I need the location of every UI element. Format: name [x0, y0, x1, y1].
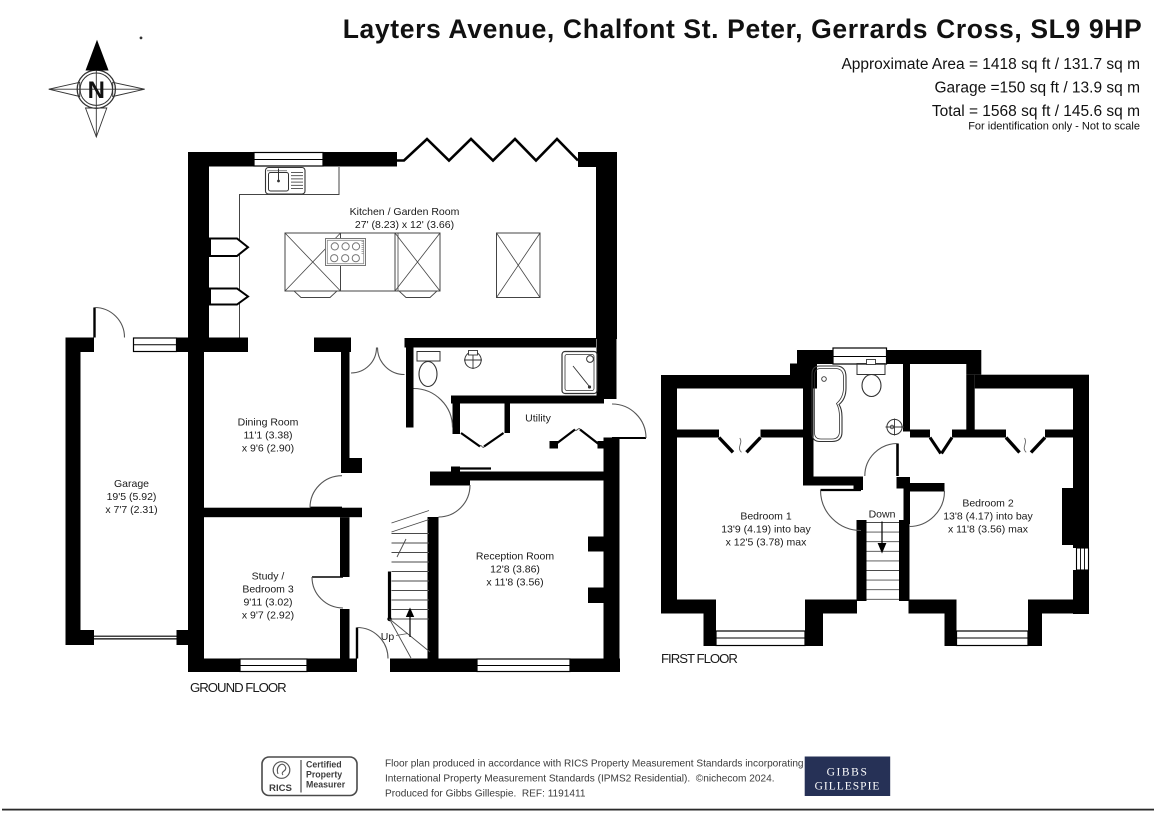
svg-text:Certified: Certified [306, 760, 342, 770]
svg-text:Measurer: Measurer [306, 780, 346, 790]
svg-text:Total = 1568 sq ft / 145.6 sq: Total = 1568 sq ft / 145.6 sq m [932, 103, 1140, 120]
svg-text:13'8 (4.17) into bay: 13'8 (4.17) into bay [943, 511, 1033, 523]
svg-text:RICS: RICS [269, 783, 293, 794]
svg-text:x 12'5 (3.78) max: x 12'5 (3.78) max [726, 537, 808, 549]
svg-text:x 7'7 (2.31): x 7'7 (2.31) [105, 504, 157, 516]
svg-text:GROUND FLOOR: GROUND FLOOR [190, 680, 286, 695]
svg-text:Produced for Gibbs Gillespie.: Produced for Gibbs Gillespie. REF: 11914… [385, 789, 586, 800]
svg-text:Reception Room: Reception Room [476, 551, 554, 563]
svg-text:GIBBS: GIBBS [827, 767, 869, 779]
svg-text:x 11'8 (3.56): x 11'8 (3.56) [486, 577, 543, 589]
svg-text:Garage: Garage [114, 478, 149, 490]
svg-text:Utility: Utility [525, 413, 551, 425]
svg-text:9'11 (3.02): 9'11 (3.02) [243, 597, 292, 609]
svg-text:Floor plan produced in accorda: Floor plan produced in accordance with R… [385, 759, 804, 770]
svg-text:13'9 (4.19) into bay: 13'9 (4.19) into bay [721, 524, 811, 536]
svg-text:Study /: Study / [252, 571, 285, 583]
svg-text:GILLESPIE: GILLESPIE [815, 781, 881, 793]
svg-text:Down: Down [869, 509, 896, 521]
svg-text:Property: Property [306, 770, 342, 780]
svg-text:N: N [88, 77, 105, 104]
svg-text:x 11'8 (3.56) max: x 11'8 (3.56) max [948, 524, 1029, 536]
svg-text:Layters Avenue, Chalfont St. P: Layters Avenue, Chalfont St. Peter, Gerr… [343, 14, 1143, 44]
svg-text:x 9'6 (2.90): x 9'6 (2.90) [242, 443, 294, 455]
svg-text:FIRST FLOOR: FIRST FLOOR [661, 651, 737, 666]
svg-text:x 9'7 (2.92): x 9'7 (2.92) [242, 610, 294, 622]
svg-text:Up: Up [381, 631, 395, 643]
svg-text:For identification only - Not: For identification only - Not to scale [968, 121, 1140, 133]
svg-text:11'1 (3.38): 11'1 (3.38) [243, 430, 292, 442]
svg-text:Approximate Area = 1418 sq ft: Approximate Area = 1418 sq ft / 131.7 sq… [841, 56, 1140, 73]
svg-text:27' (8.23) x 12' (3.66): 27' (8.23) x 12' (3.66) [355, 219, 454, 231]
svg-text:19'5 (5.92): 19'5 (5.92) [107, 491, 157, 503]
svg-text:Bedroom 3: Bedroom 3 [242, 584, 294, 596]
svg-text:Bedroom 2: Bedroom 2 [962, 498, 1014, 510]
svg-text:Kitchen / Garden Room: Kitchen / Garden Room [350, 206, 460, 218]
svg-text:Dining Room: Dining Room [238, 417, 299, 429]
svg-text:Garage =150 sq ft / 13.9 sq m: Garage =150 sq ft / 13.9 sq m [935, 80, 1141, 97]
svg-text:International Property Measure: International Property Measurement Stand… [385, 774, 775, 785]
svg-text:Bedroom 1: Bedroom 1 [740, 511, 792, 523]
svg-text:12'8 (3.86): 12'8 (3.86) [490, 564, 540, 576]
